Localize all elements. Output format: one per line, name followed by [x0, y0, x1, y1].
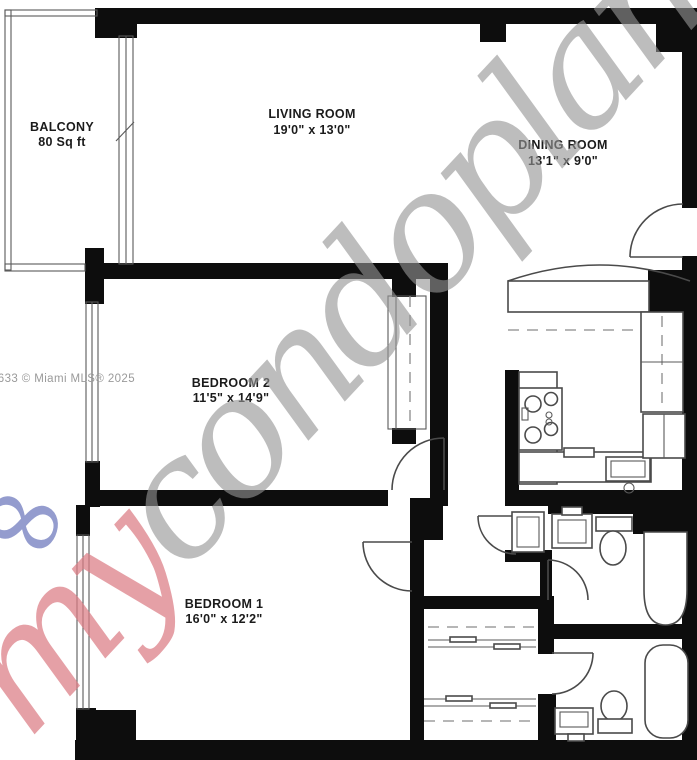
bathroom1-door-swing	[548, 560, 588, 600]
bedroom1-dims: 16'0" x 12'2"	[185, 612, 262, 626]
dining-room-label: DINING ROOM	[518, 138, 607, 152]
kitchen-sink-fixture	[606, 457, 650, 493]
mls-credit: 2633 © Miami MLS® 2025	[0, 373, 135, 385]
bathroom2	[555, 645, 688, 741]
bedroom2-label: BEDROOM 2	[192, 376, 270, 390]
toilet-fixture	[596, 517, 632, 565]
dining-room-dims: 13'1" x 9'0"	[528, 154, 598, 168]
linen-closet	[512, 512, 544, 552]
bedroom2-dims: 11'5" x 14'9"	[193, 391, 270, 405]
refrigerator-fixture	[643, 414, 685, 458]
hall-closet-2-shelf	[424, 696, 536, 721]
balcony-dims: 80 Sq ft	[38, 135, 86, 149]
hall-closet-1-shelf	[428, 627, 536, 649]
bathroom2-door-swing	[552, 653, 593, 694]
bathtub-fixture	[644, 532, 687, 625]
walls	[75, 8, 697, 760]
bathtub-fixture	[645, 645, 688, 738]
living-room-label: LIVING ROOM	[268, 107, 355, 121]
balcony-window	[119, 36, 133, 264]
bedroom2-closet	[388, 296, 426, 429]
stove-fixture	[519, 388, 562, 450]
vanity-sink-fixture	[555, 708, 593, 741]
bedroom1-label: BEDROOM 1	[185, 597, 263, 611]
entry-door-swing	[630, 204, 683, 257]
kitchen-right-counter	[641, 312, 683, 412]
floor-plan: BALCONY 80 Sq ft LIVING ROOM 19'0" x 13'…	[0, 0, 697, 760]
living-room-dims: 19'0" x 13'0"	[273, 123, 350, 137]
bedroom1-door-swing	[363, 542, 412, 591]
bedroom1-window	[77, 535, 89, 709]
hall-closet-door-swing	[478, 516, 516, 554]
toilet-fixture	[598, 691, 632, 733]
balcony-label: BALCONY	[30, 120, 94, 134]
